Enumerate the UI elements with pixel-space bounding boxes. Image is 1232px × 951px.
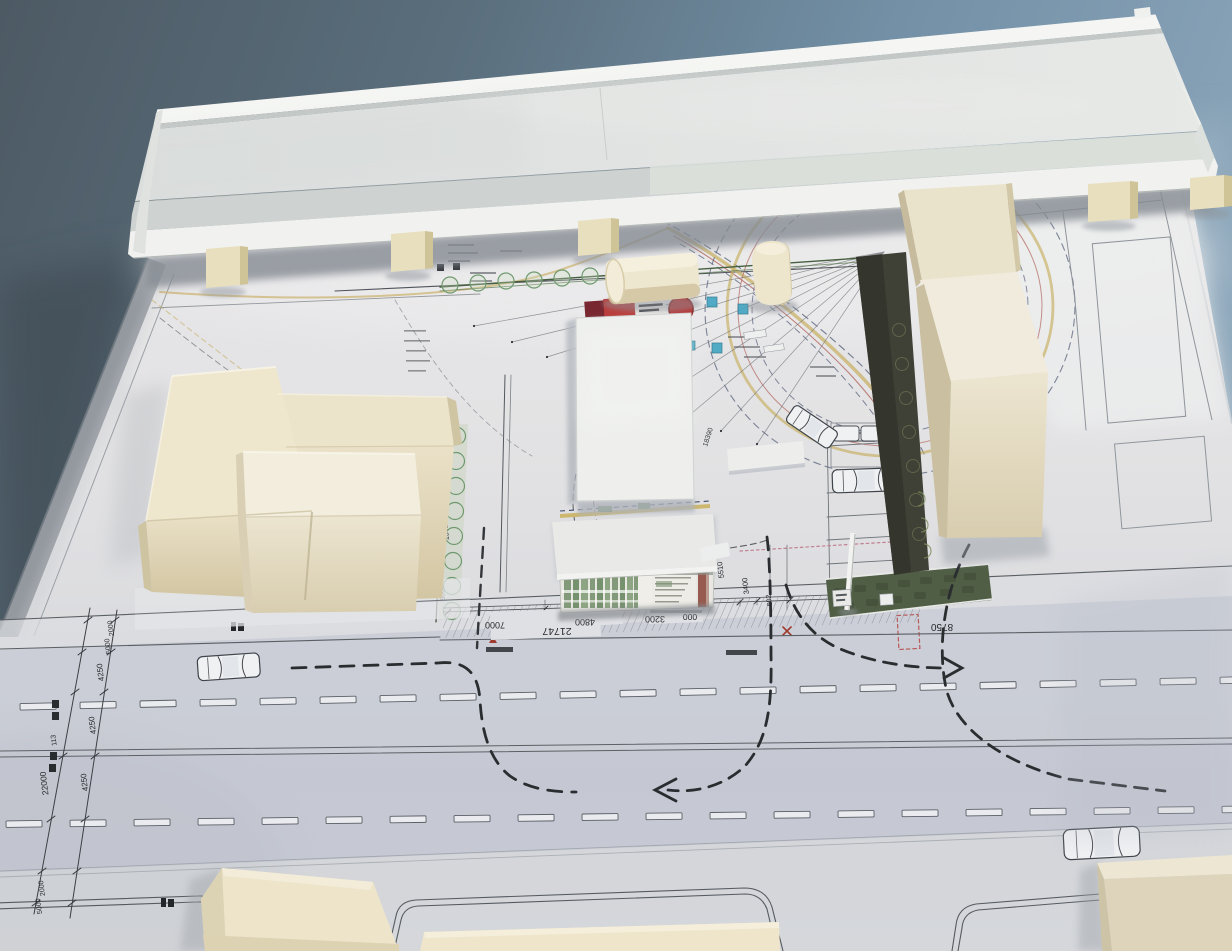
svg-text:7000: 7000	[485, 620, 505, 630]
svg-text:8750: 8750	[930, 621, 953, 632]
svg-text:113: 113	[50, 734, 58, 746]
svg-text:21747: 21747	[542, 625, 571, 637]
